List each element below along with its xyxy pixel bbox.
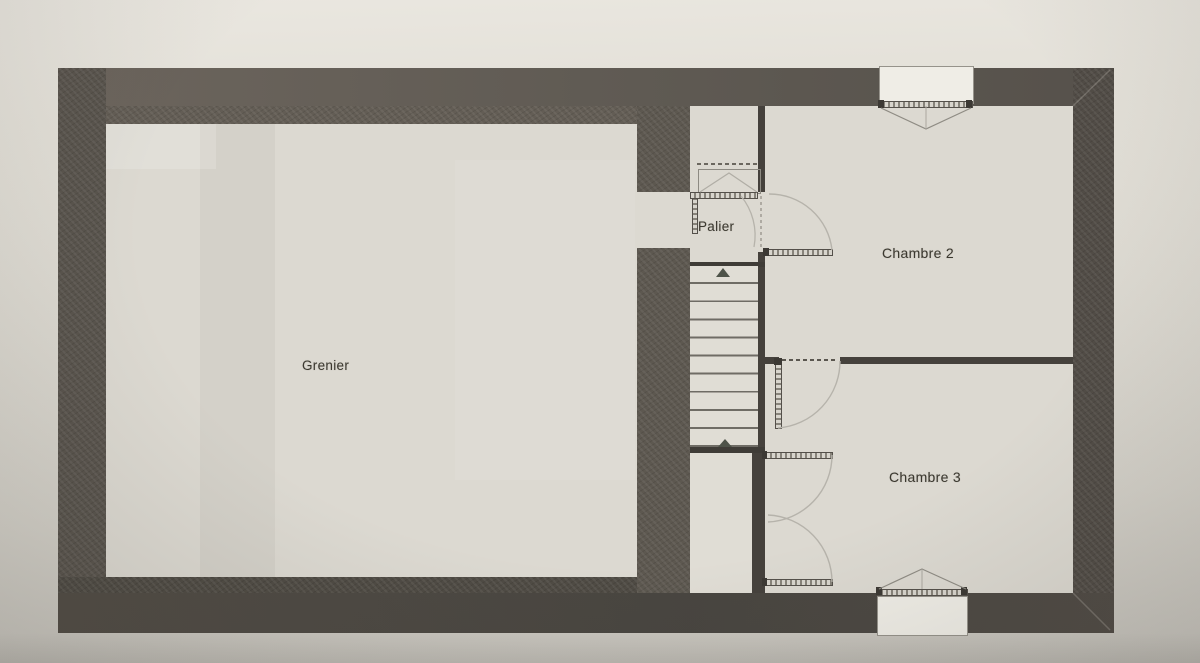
palier-closet-chevron <box>700 173 757 192</box>
closet-door-arc-bottom <box>768 515 832 582</box>
closet-door-arc-top <box>768 455 832 522</box>
chambre2-door-arc <box>769 194 832 250</box>
stair-arrow-bottom-icon <box>718 439 732 447</box>
floor-plan-photo: Grenier Palier Chambre 2 Chambre 3 <box>0 0 1200 663</box>
plan-linework <box>0 0 1200 663</box>
corner-miter-bottom-right <box>1073 593 1110 630</box>
room-label-chambre-3: Chambre 3 <box>889 469 961 485</box>
corner-miter-top-right <box>1073 70 1110 106</box>
chambre3-door-arc <box>778 361 840 428</box>
stair-arrow-top-icon <box>716 268 730 277</box>
palier-door-arc <box>741 196 755 247</box>
room-label-palier: Palier <box>698 219 734 234</box>
room-label-grenier: Grenier <box>302 358 349 373</box>
room-label-chambre-2: Chambre 2 <box>882 245 954 261</box>
